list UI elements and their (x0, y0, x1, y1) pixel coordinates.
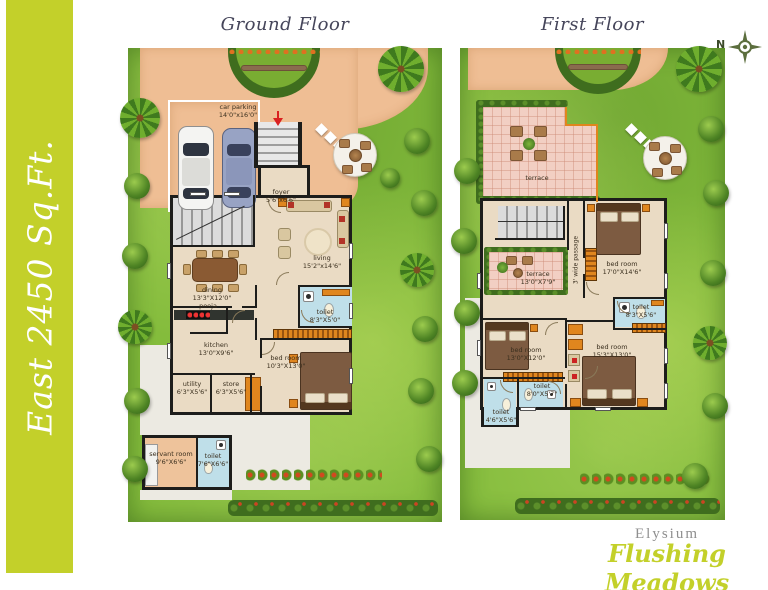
pillow (600, 212, 618, 222)
bed (596, 203, 641, 255)
wardrobe (585, 248, 597, 281)
palm-tree-icon (118, 310, 152, 344)
room-dims: 15'3"X13'0" (593, 351, 632, 359)
window (224, 192, 240, 196)
nightstand (570, 398, 581, 407)
room-label-terrace-small: terrace 13'0"X7'9" (521, 270, 556, 287)
pillow (489, 331, 506, 341)
room-name: pooja (199, 302, 217, 310)
bed-headboard (301, 402, 351, 409)
pillow (621, 212, 639, 222)
garden-table (659, 152, 672, 165)
room-label-store: store 6'3"X5'6" (216, 380, 247, 397)
room-name: servant room (149, 450, 192, 458)
wall (242, 306, 255, 308)
palm-tree-icon (378, 46, 424, 92)
tree-icon (703, 180, 729, 206)
dining-chair (183, 264, 191, 275)
wall (260, 338, 352, 340)
tree-icon (412, 316, 438, 342)
tree-icon (416, 446, 442, 472)
dining-chair (239, 264, 247, 275)
entry-arrow-icon (273, 118, 283, 126)
vanity (322, 289, 350, 296)
room-name: bed room (593, 343, 632, 351)
room-name: toilet (626, 303, 657, 311)
compass-star-icon (728, 30, 762, 64)
nightstand (587, 204, 595, 212)
terrace-chair (534, 126, 547, 137)
room-name: kitchen (199, 341, 234, 349)
room-name: terrace (521, 270, 556, 278)
room-dims: 4'6"X5'6" (486, 416, 517, 424)
wall (173, 245, 253, 247)
room-label-servant-room: servant room 9'6"X6'6" (149, 450, 192, 467)
room-label-bed-room-1: bed room 17'0"X14'6" (603, 260, 642, 277)
room-label-bed-room-3: bed room 15'3"X13'0" (593, 343, 632, 360)
room-name: bed room (507, 346, 546, 354)
stair-rail (498, 221, 563, 222)
window (349, 303, 353, 319)
room-label-passage: 3' wide passage (573, 236, 580, 284)
room-label-bed-room-2: bed room 13'0"X12'0" (507, 346, 546, 363)
washbasin (216, 440, 226, 450)
pillow (612, 389, 632, 399)
rear-paving-strip (140, 490, 232, 500)
dining-chair (196, 250, 207, 258)
dining-table (192, 258, 238, 282)
room-dims: 17'0"X14'6" (603, 268, 642, 276)
rear-walkway (140, 415, 310, 435)
tree-icon (411, 190, 437, 216)
window (349, 368, 353, 384)
terrace-chair (522, 256, 533, 265)
garden-chair (360, 141, 371, 150)
tree-icon (408, 378, 434, 404)
entry-steps (258, 122, 298, 166)
wall (613, 297, 615, 330)
room-label-bed-room: bed room 10'3"X13'0" (267, 354, 306, 371)
garden-chair (361, 163, 372, 172)
terrace-chair (534, 150, 547, 161)
car-white (178, 126, 214, 210)
dining-chair (228, 250, 239, 258)
window (477, 273, 481, 289)
room-name: living (303, 254, 341, 262)
nightstand (637, 398, 648, 407)
tree-icon (404, 128, 430, 154)
room-label-servant-toilet: toilet 7'6"X6'6" (198, 452, 229, 469)
room-label-terrace-large: terrace (525, 174, 548, 182)
wall (583, 200, 585, 258)
tree-icon (454, 158, 480, 184)
wall (190, 332, 226, 334)
room-dims: 6'3"X5'6" (216, 388, 247, 396)
plant (523, 138, 535, 150)
wall (583, 274, 585, 298)
room-name: toilet (486, 408, 517, 416)
room-name: toilet (527, 382, 558, 390)
flower-border (228, 48, 320, 54)
room-name: bed room (267, 354, 306, 362)
decor-item (572, 358, 577, 363)
room-label-toilet-3: toilet 4'6"X5'6" (486, 408, 517, 425)
pillow (305, 393, 325, 403)
palm-tree-icon (400, 253, 434, 287)
car-blue (222, 128, 256, 208)
wall (563, 206, 565, 240)
staircase (498, 206, 563, 238)
wall (567, 320, 615, 322)
hedge-row (228, 500, 438, 516)
tree-icon (122, 243, 148, 269)
room-dims: 6'3"X5'6" (177, 388, 208, 396)
first-floor-plan: terrace terrace 13'0"X7'9" 3' wide passa… (460, 48, 725, 520)
tree-icon (700, 260, 726, 286)
gate-bar (241, 65, 307, 71)
flower-bed (246, 468, 382, 482)
garden-chair (339, 139, 350, 148)
nightstand (530, 324, 538, 332)
car-windshield (227, 144, 251, 156)
pillow (509, 331, 526, 341)
page: East 2450 Sq.Ft. Ground Floor First Floo… (0, 0, 768, 590)
tree-icon (122, 456, 148, 482)
room-label-dining: dining 13'3"X12'0" (193, 286, 232, 303)
car-windshield (183, 143, 209, 156)
room-dims: 8'0"X5'7" (527, 390, 558, 398)
bed (582, 356, 636, 406)
wall (260, 386, 262, 415)
room-name: car parking (219, 103, 257, 111)
window (349, 243, 353, 259)
corner-table (341, 198, 350, 207)
wall (483, 377, 565, 379)
ground-floor-title: Ground Floor (128, 14, 442, 38)
room-dims: 8'3"X5'0" (310, 316, 341, 324)
terrace-chair (506, 256, 517, 265)
nightstand (642, 204, 650, 212)
plant (497, 262, 508, 273)
cushion (339, 238, 345, 244)
pillow (328, 393, 348, 403)
stove (186, 311, 210, 319)
room-dims: 7'6"X6'6" (198, 460, 229, 468)
living-rug (304, 228, 332, 256)
room-label-toilet: toilet 8'3"X5'0" (310, 308, 341, 325)
washbasin (487, 382, 496, 391)
sidebar-area-band: East 2450 Sq.Ft. (6, 0, 73, 573)
wall (255, 318, 257, 340)
tree-icon (451, 228, 477, 254)
window (167, 263, 171, 279)
room-label-kitchen: kitchen 13'0"X9'6" (199, 341, 234, 358)
window (664, 273, 668, 289)
wall (517, 379, 519, 427)
window (190, 192, 206, 196)
wall (298, 287, 300, 328)
window (595, 407, 611, 411)
wall (253, 195, 255, 247)
porch-wall (298, 122, 302, 168)
wall (170, 373, 255, 375)
tree-icon (702, 393, 728, 419)
wall (495, 238, 565, 240)
wall (260, 340, 262, 358)
window (167, 343, 171, 359)
room-name: foyer (266, 188, 296, 196)
room-dims: 10'3"X13'0" (267, 362, 306, 370)
garden-chair (649, 142, 660, 151)
nightstand (289, 399, 298, 408)
wall (565, 384, 567, 410)
room-name: toilet (198, 452, 229, 460)
room-label-toilet-1: toilet 8'3"X5'6" (626, 303, 657, 320)
bed-headboard (597, 204, 640, 211)
room-dims: 8'3"X5'6" (626, 311, 657, 319)
garden-chair (652, 168, 663, 177)
garden-chair (670, 144, 681, 153)
terrace-parapet (565, 124, 598, 126)
palm-tree-icon (693, 326, 727, 360)
room-name: dining (193, 286, 232, 294)
room-name: store (216, 380, 247, 388)
terrace-hedge (484, 290, 568, 295)
room-label-living: living 15'2"x14'6" (303, 254, 341, 271)
terrace-hedge (476, 100, 568, 107)
hedge-row (515, 498, 720, 514)
room-dims: 9'6"X6'6" (149, 458, 192, 466)
terrace-hedge (484, 247, 568, 252)
tree-icon (124, 173, 150, 199)
armchair (568, 324, 583, 335)
window (477, 340, 481, 356)
ground-floor-plan: car parking 14'0"x16'0" foyer 5'6"x6'6" … (128, 48, 442, 522)
room-name: bed room (603, 260, 642, 268)
decor-item (572, 374, 577, 379)
window (664, 223, 668, 239)
car-roof (226, 158, 252, 185)
gate-bar (568, 64, 628, 70)
terrace-chair (510, 150, 523, 161)
room-label-foyer: foyer 5'6"x6'6" (266, 188, 296, 205)
armchair (568, 339, 583, 350)
bed (300, 352, 352, 410)
wall (250, 375, 252, 415)
garden-chair (342, 165, 353, 174)
palm-tree-icon (120, 98, 160, 138)
pillow (587, 389, 607, 399)
room-dims: 13'0"X7'9" (521, 278, 556, 286)
cushion (324, 202, 330, 208)
wall (226, 308, 228, 334)
tree-icon (682, 463, 708, 489)
room-label-car-parking: car parking 14'0"x16'0" (219, 103, 257, 120)
terrace-hedge (563, 247, 568, 295)
garden-table (349, 149, 362, 162)
room-dims: 13'0"X12'0" (507, 354, 546, 362)
wall (482, 318, 567, 320)
tree-icon (380, 168, 400, 188)
tree-icon (452, 370, 478, 396)
garden-chair (671, 166, 682, 175)
room-dims: 5'6"x6'6" (266, 196, 296, 204)
terrace-hedge (484, 247, 489, 295)
terrace-chair (510, 126, 523, 137)
wall (615, 297, 667, 299)
wash-area (245, 377, 261, 411)
wall (567, 200, 569, 250)
window (520, 407, 536, 411)
room-label-toilet-2: toilet 8'0"X5'7" (527, 382, 558, 399)
washbasin (303, 291, 314, 302)
wall (255, 285, 257, 308)
wall (298, 326, 352, 328)
bed-headboard (486, 323, 528, 330)
room-name: utility (177, 380, 208, 388)
brand-project-name: Flushing Meadows (572, 539, 762, 590)
dining-chair (212, 250, 223, 258)
room-name: terrace (525, 174, 548, 182)
flower-border (555, 48, 641, 54)
room-dims: 14'0"x16'0" (219, 111, 257, 119)
armchair (278, 246, 291, 259)
room-label-utility: utility 6'3"X5'6" (177, 380, 208, 397)
tree-icon (124, 388, 150, 414)
room-dims: 15'2"x14'6" (303, 262, 341, 270)
window (664, 383, 668, 399)
tree-icon (454, 300, 480, 326)
first-floor-title: First Floor (460, 14, 725, 38)
terrace-parapet (596, 124, 598, 202)
wall (298, 285, 352, 287)
room-name: toilet (310, 308, 341, 316)
bed-headboard (583, 398, 635, 405)
wall (565, 320, 567, 368)
terrace-hedge (476, 100, 483, 204)
wall (613, 328, 667, 330)
room-label-pooja: pooja (199, 302, 217, 310)
tree-icon (698, 116, 724, 142)
wall (210, 375, 212, 415)
room-dims: 13'0"X9'6" (199, 349, 234, 357)
branding: Elysium Flushing Meadows signature villa… (572, 526, 762, 590)
palm-tree-icon (676, 46, 722, 92)
cushion (339, 216, 345, 222)
sidebar-area-label: East 2450 Sq.Ft. (20, 139, 59, 435)
terrace-parapet (565, 107, 567, 125)
armchair (278, 228, 291, 241)
car-roof (182, 158, 210, 186)
porch-wall (254, 122, 258, 168)
window (664, 348, 668, 364)
